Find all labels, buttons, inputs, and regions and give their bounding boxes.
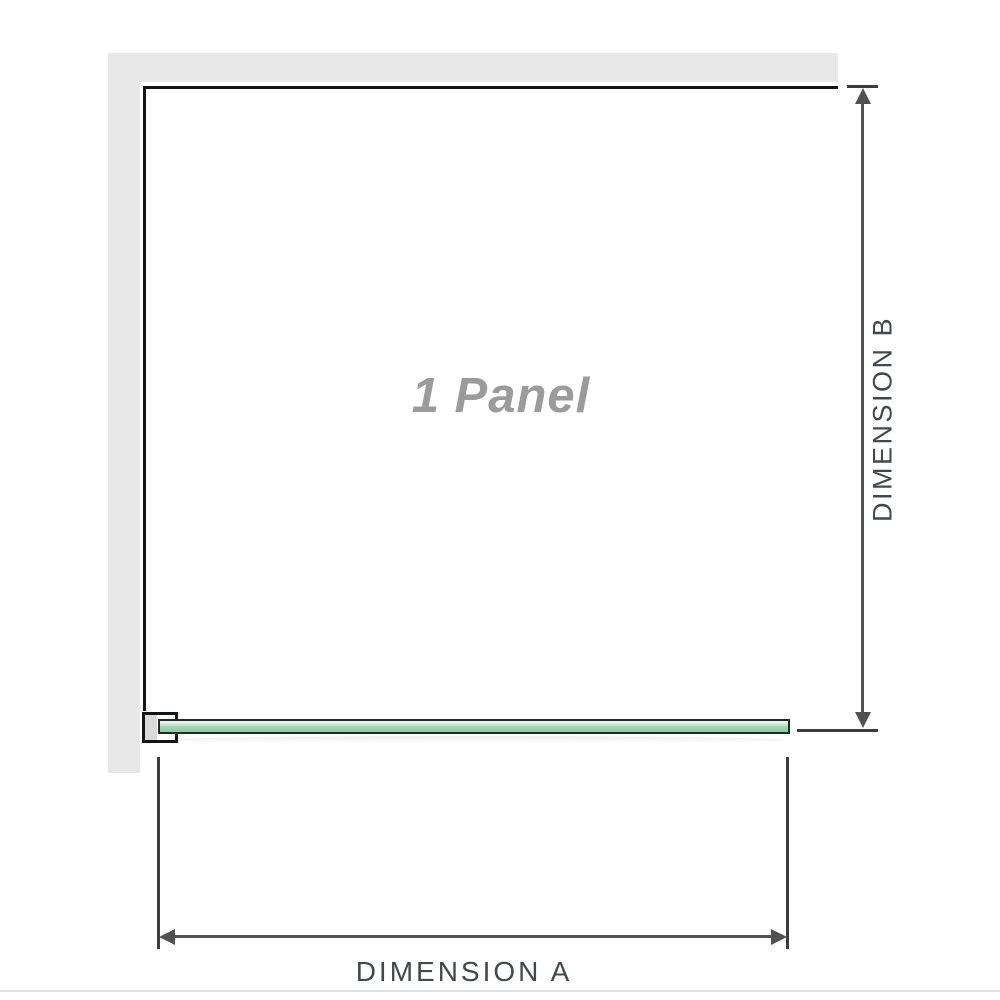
bottom-divider bbox=[0, 990, 1000, 992]
shower-panel-dimension-diagram: 1 Panel DIMENSION B DIMENSION A bbox=[0, 0, 1000, 1000]
dimension-b-bottom-tick bbox=[797, 729, 878, 732]
wall-left bbox=[108, 53, 140, 773]
arrow-down-icon bbox=[855, 712, 871, 728]
wall-bracket-fill bbox=[145, 715, 157, 740]
glass-panel-shadow bbox=[162, 736, 787, 744]
dimension-a-right-tick bbox=[786, 757, 789, 949]
dimension-b-label: DIMENSION B bbox=[868, 316, 899, 522]
arrow-right-icon bbox=[771, 929, 787, 945]
wall-top bbox=[108, 53, 838, 82]
panel-outline-top bbox=[143, 86, 838, 89]
dimension-b-line bbox=[861, 100, 864, 716]
panel-outline-left bbox=[143, 86, 146, 711]
dimension-a-left-tick bbox=[157, 757, 160, 949]
glass-panel bbox=[158, 719, 790, 734]
arrow-left-icon bbox=[159, 929, 175, 945]
dimension-a-line bbox=[173, 935, 773, 938]
panel-count-watermark: 1 Panel bbox=[412, 368, 591, 424]
dimension-a-label: DIMENSION A bbox=[356, 956, 573, 988]
arrow-up-icon bbox=[855, 88, 871, 104]
